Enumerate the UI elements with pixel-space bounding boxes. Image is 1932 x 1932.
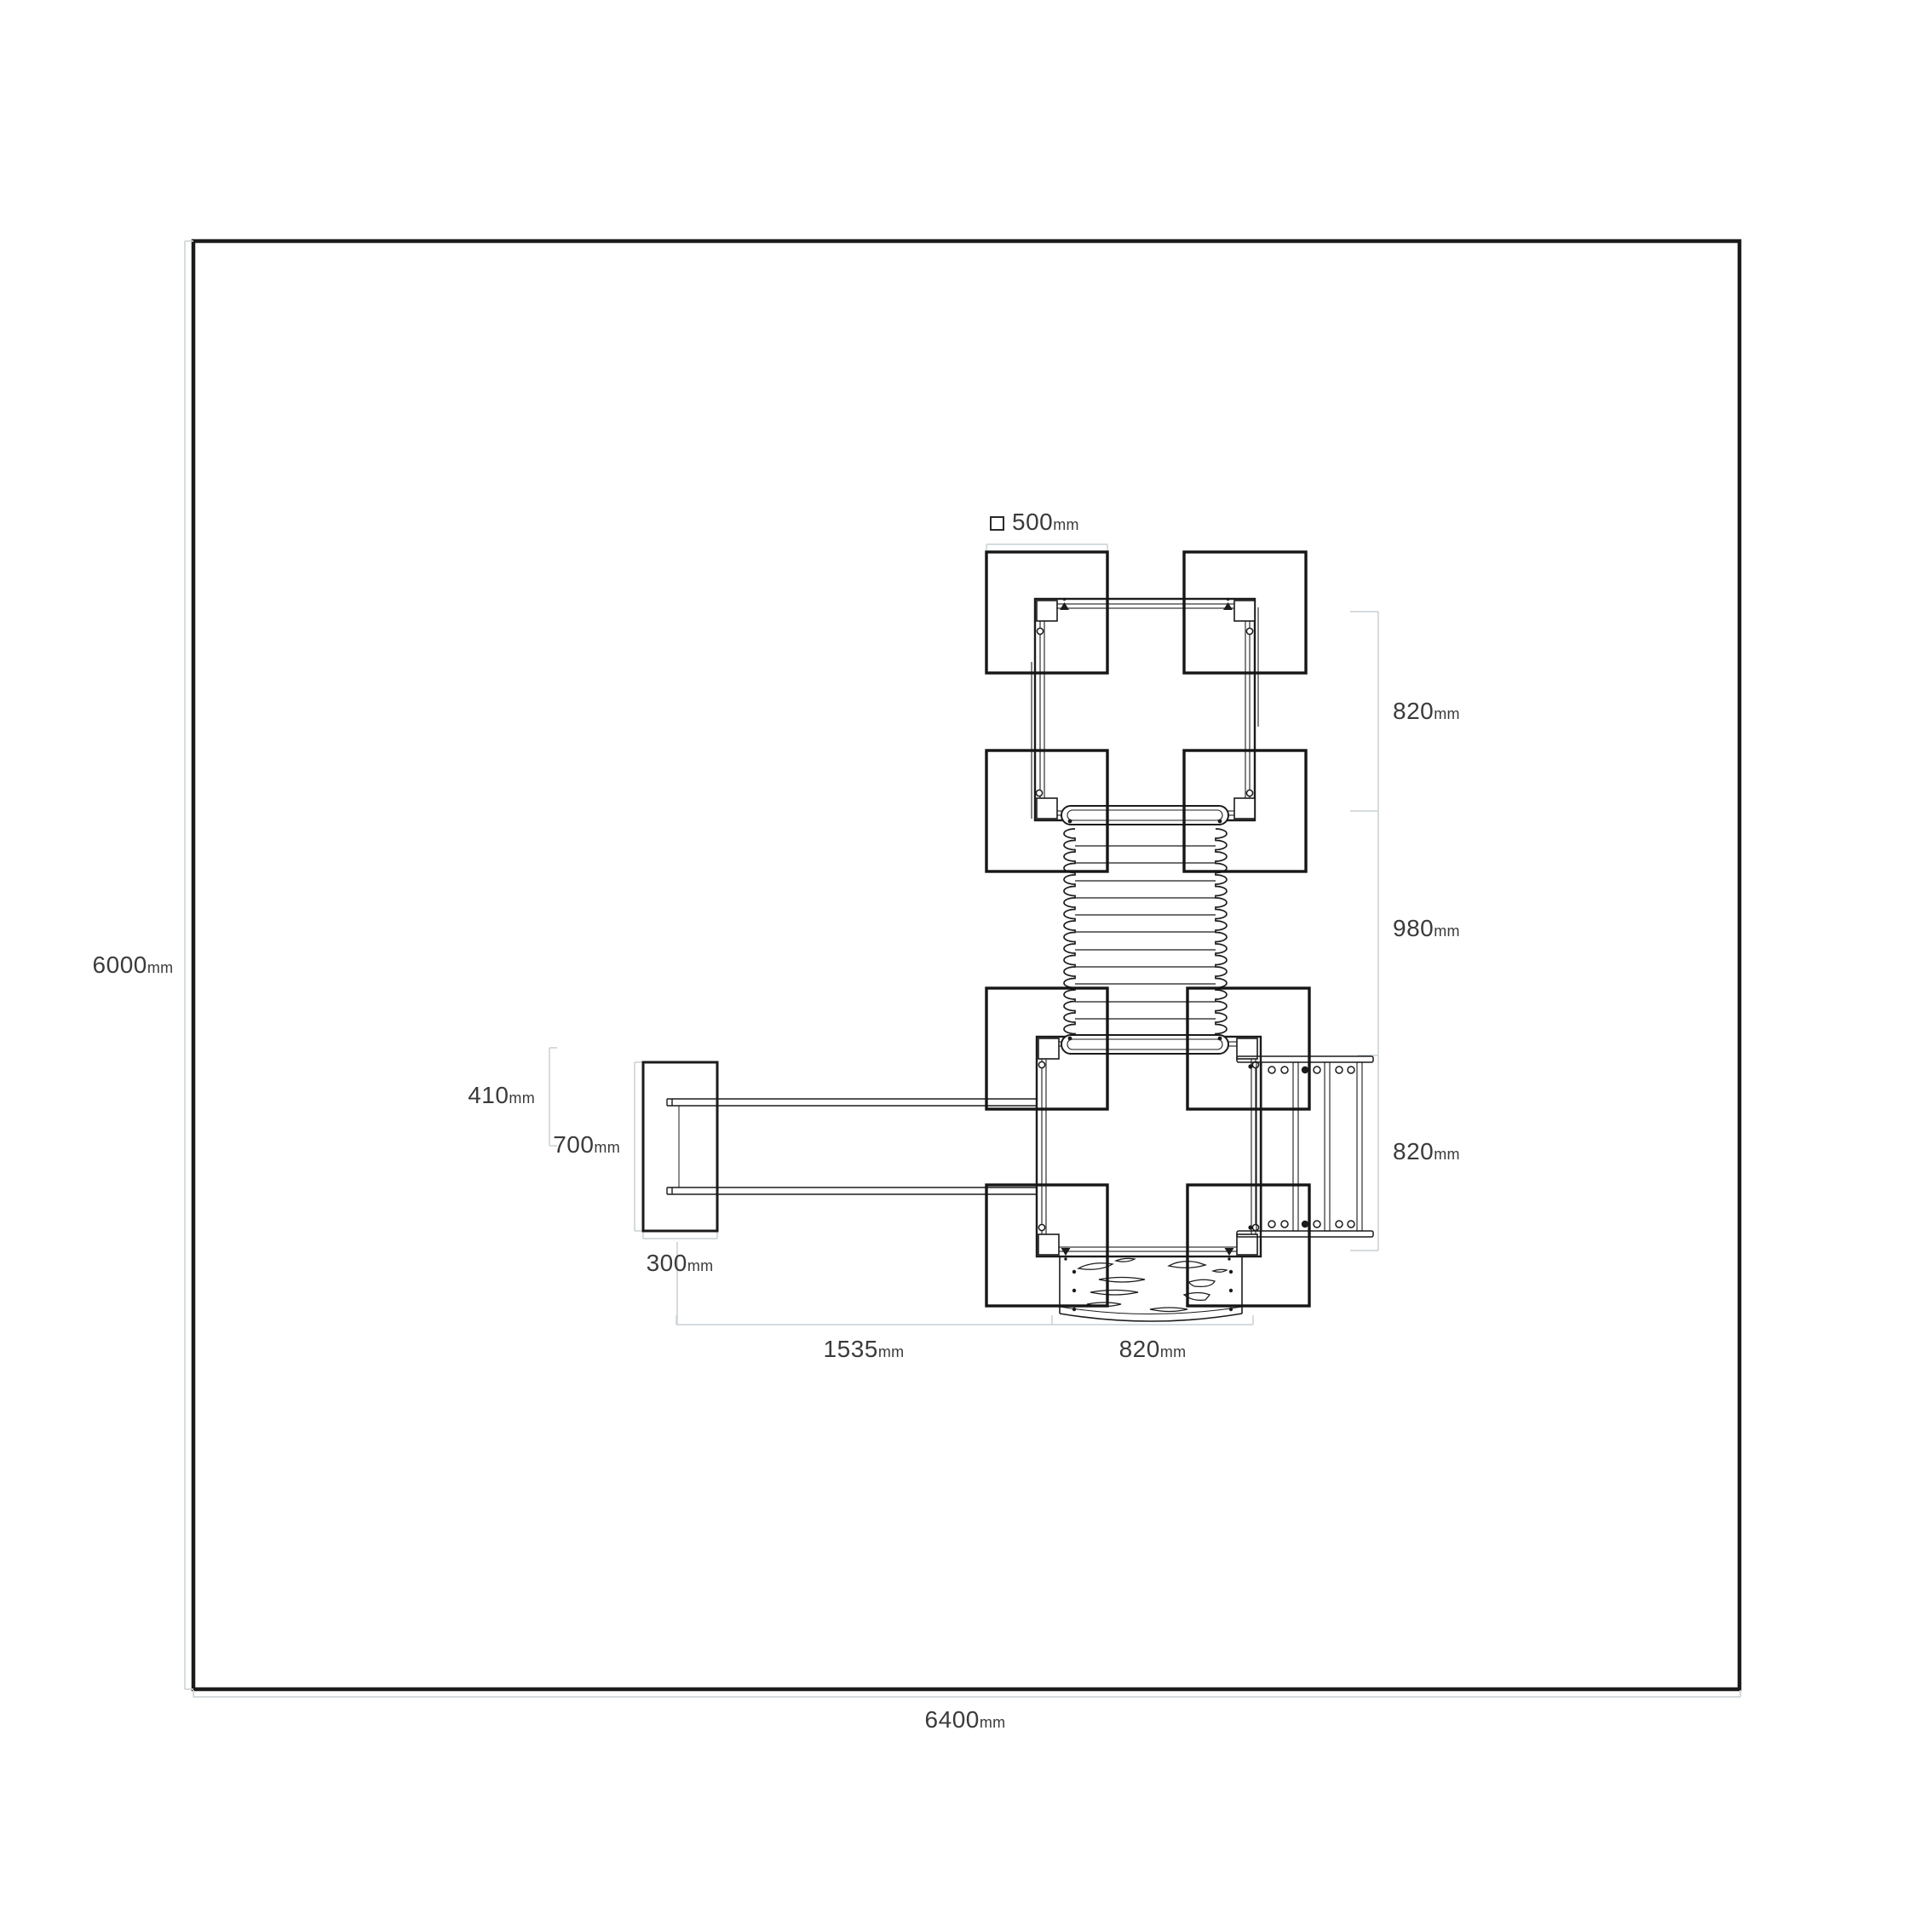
dim-unit: mm [878,1344,905,1360]
dim-unit: mm [1160,1344,1187,1360]
dim-beam-span: 1535 mm [824,1337,905,1361]
dim-value: 820 [1119,1337,1160,1361]
dim-value: 300 [647,1251,687,1275]
square-symbol [990,516,1004,531]
dim-value: 410 [468,1084,509,1107]
plan-drawing [0,0,1932,1932]
ladder [1237,1056,1373,1237]
rail-fittings [1061,1248,1234,1261]
end-block [643,1062,717,1231]
dim-unit: mm [1434,923,1460,939]
dim-value: 6000 [93,953,147,977]
drawing-canvas: 500 mm 6000 mm 6400 mm 820 mm 980 mm 820… [0,0,1932,1932]
dim-post-size: 500 mm [990,510,1079,534]
dim-unit: mm [687,1258,714,1274]
dim-value: 1535 [824,1337,878,1361]
slide-panel [1060,1256,1242,1321]
dim-unit: mm [1053,517,1079,532]
dim-value: 500 [1012,510,1053,534]
dim-unit: mm [1434,706,1460,722]
dim-unit: mm [980,1715,1006,1730]
lower-platform [1037,1037,1261,1261]
dim-end-block-width: 300 mm [647,1251,714,1275]
wood-grain [1078,1258,1227,1311]
dim-area-width: 6400 mm [925,1708,1006,1732]
dim-unit: mm [1434,1147,1460,1162]
dim-value: 6400 [925,1708,980,1732]
dim-value: 980 [1393,917,1434,940]
dim-unit: mm [147,960,174,975]
balance-beams [667,1099,1037,1194]
dim-tunnel-length: 980 mm [1393,917,1460,940]
dim-unit: mm [594,1140,620,1155]
safety-area-border [193,241,1739,1689]
tunnel-end-caps [1061,806,1228,1054]
dim-beam-offset: 410 mm [468,1084,535,1107]
deck-bolts [1036,628,1252,796]
dim-unit: mm [509,1090,535,1106]
dim-upper-platform: 820 mm [1393,699,1460,723]
deck-bolts [1038,1061,1258,1230]
dim-value: 820 [1393,1140,1434,1164]
ladder-bolts [1268,1067,1354,1228]
dim-value: 700 [553,1133,594,1157]
dim-value: 820 [1393,699,1434,723]
dim-lower-platform: 820 mm [1393,1140,1460,1164]
tunnel [1061,806,1228,1054]
dim-end-block-length: 700 mm [553,1133,620,1157]
upper-platform [1032,598,1258,820]
dimension-lines [185,241,1740,1697]
dim-slide-width: 820 mm [1119,1337,1187,1361]
dim-area-height: 6000 mm [93,953,174,977]
